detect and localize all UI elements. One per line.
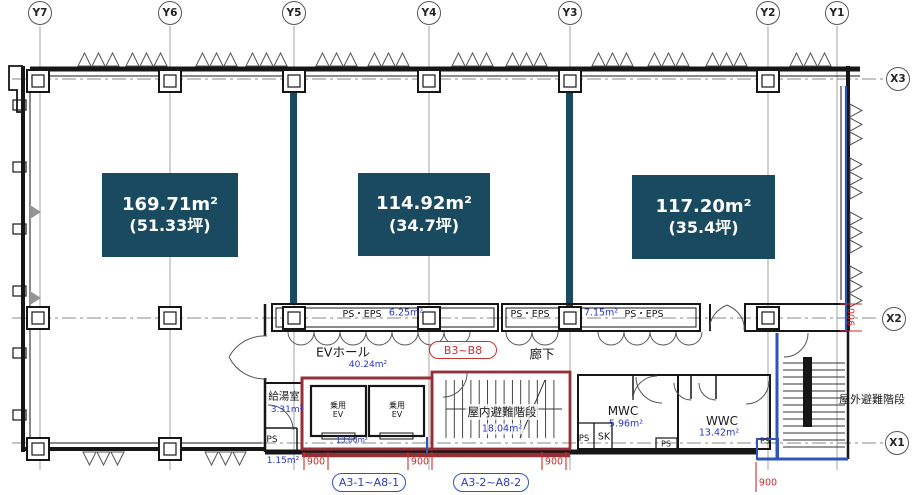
corridor-label: 廊下: [529, 344, 554, 363]
ps-eps-2-left-label: PS・EPS: [510, 306, 549, 320]
dim-900-right: 900: [847, 308, 858, 326]
unit-area-box-1: 169.71m² (51.33坪): [102, 173, 238, 257]
dim-900-4: 900: [759, 478, 777, 489]
unit-3-area-m2: 117.20m²: [655, 195, 751, 218]
elevator-2-label: 乗用 EV: [389, 401, 405, 419]
wwc-area: 13.42m²: [699, 428, 739, 439]
grid-label-y5: Y5: [282, 1, 306, 25]
unit-1-area-tsubo: (51.33坪): [129, 216, 210, 237]
ps-eps-1-label: PS・EPS: [342, 306, 381, 320]
a-units-tag-1: A3-1~A8-1: [332, 473, 406, 492]
wwc-label: WWC: [706, 414, 738, 428]
sk-label: SK: [598, 432, 610, 443]
dim-900-2: 900: [411, 457, 429, 468]
ev-hall-area: 40.24m²: [349, 360, 387, 370]
unit-area-box-3: 117.20m² (35.4坪): [632, 175, 775, 259]
elevator-1-label: 乗用 EV: [330, 401, 346, 419]
walls-layer: [9, 66, 860, 452]
elevator-area: 13.60m²: [336, 436, 368, 445]
ps-bottom-label: PS: [266, 435, 277, 445]
indoor-stairs-label: 屋内避難階段: [466, 404, 539, 420]
ps-bottom-area: 1.15m²: [267, 456, 299, 466]
grid-label-y4: Y4: [417, 1, 441, 25]
elevator-2-line1: 乗用: [389, 401, 405, 410]
grid-label-x3: X3: [886, 67, 910, 91]
core-rooms-layer: [229, 86, 848, 459]
floor-plan: Y7 Y6 Y5 Y4 Y3 Y2 Y1 X3 X2 X1 169.71m² (…: [0, 0, 912, 495]
elevator-1-line2: EV: [330, 410, 346, 419]
mwc-area: 5.96m²: [609, 419, 643, 430]
unit-3-area-tsubo: (35.4坪): [668, 218, 738, 239]
unit-2-area-tsubo: (34.7坪): [389, 216, 459, 237]
elevator-2-line2: EV: [389, 410, 405, 419]
ps-eps-1-area: 6.25m²: [389, 308, 423, 319]
grid-label-y7: Y7: [28, 1, 52, 25]
b-units-tag: B3~B8: [429, 341, 497, 359]
dim-900-3: 900: [545, 457, 563, 468]
ps-left-label: PS: [579, 434, 590, 444]
unit-2-area-m2: 114.92m²: [376, 192, 472, 215]
unit-area-box-2: 114.92m² (34.7坪): [358, 173, 490, 256]
ps-eps-2-area: 7.15m²: [584, 308, 618, 319]
dim-900-1: 900: [307, 457, 325, 468]
kitchenette-area: 3.31m²: [271, 405, 303, 415]
ev-hall-label: EVホール: [316, 342, 370, 361]
kitchenette-label: 給湯室: [268, 389, 300, 404]
ps-right-label: PS: [760, 437, 770, 446]
grid-label-x2: X2: [882, 307, 906, 331]
mwc-label: MWC: [608, 404, 639, 418]
grid-label-y1: Y1: [825, 1, 849, 25]
ps-mid-label: PS: [661, 440, 671, 449]
elevator-1-line1: 乗用: [330, 401, 346, 410]
grid-label-x1: X1: [885, 431, 909, 455]
ps-eps-2-right-label: PS・EPS: [624, 306, 663, 320]
a-units-tag-2: A3-2~A8-2: [453, 473, 529, 492]
grid-label-y2: Y2: [756, 1, 780, 25]
unit-1-area-m2: 169.71m²: [122, 193, 218, 216]
indoor-stairs-area: 18.04m²: [480, 424, 524, 435]
grid-label-y3: Y3: [558, 1, 582, 25]
outdoor-stairs-label: 屋外避難階段: [839, 391, 905, 407]
grid-label-y6: Y6: [158, 1, 182, 25]
